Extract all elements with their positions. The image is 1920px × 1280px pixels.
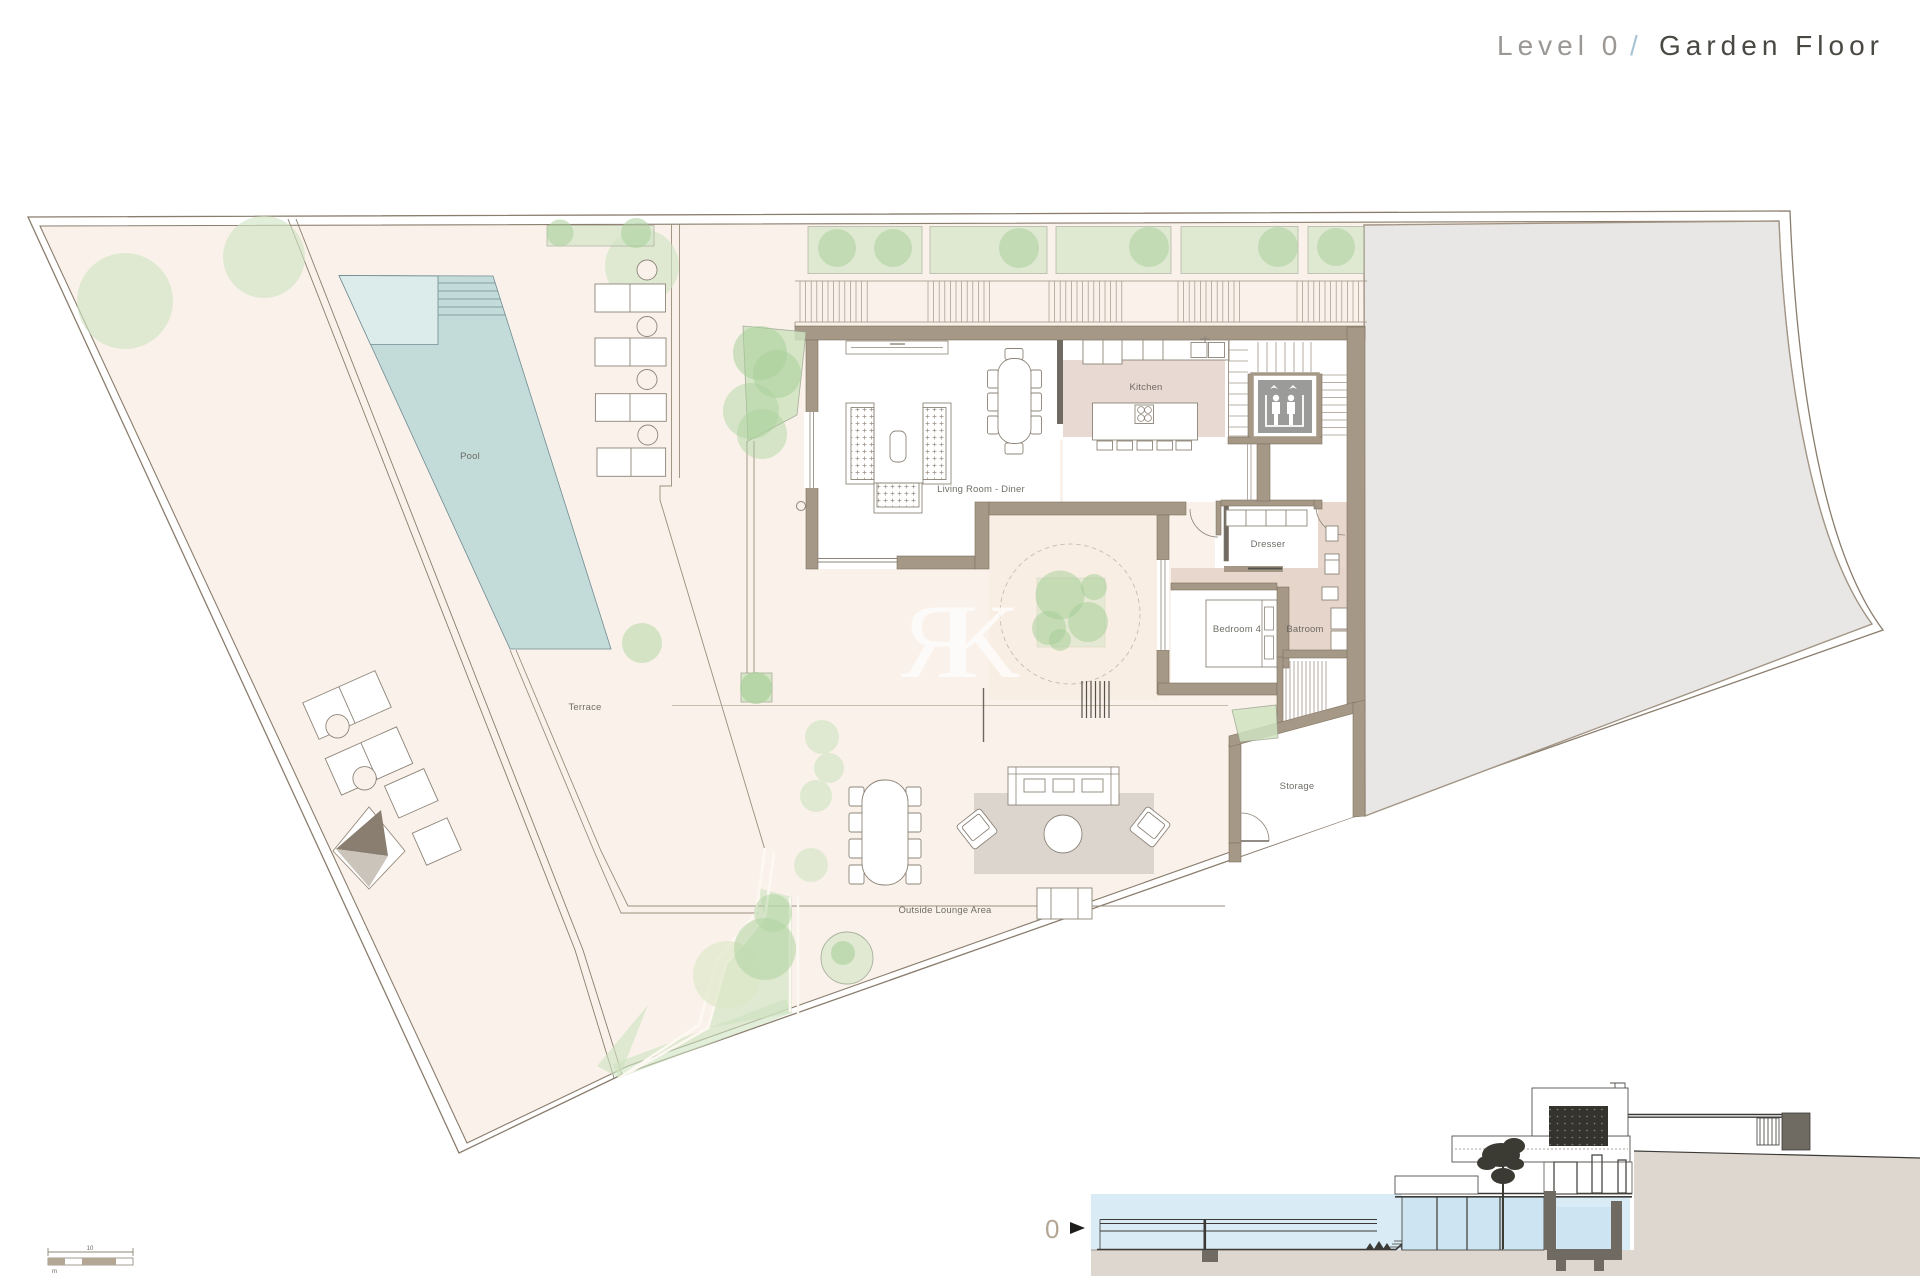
svg-text:10: 10 [87,1246,94,1252]
svg-text:Storage: Storage [1280,781,1315,792]
svg-text:0: 0 [1045,1214,1059,1244]
svg-text:K: K [944,583,1021,700]
svg-text:Bedroom 4: Bedroom 4 [1213,624,1261,635]
svg-text:Dresser: Dresser [1251,539,1286,550]
svg-text:Garden Floor: Garden Floor [1659,30,1884,61]
svg-text:m: m [52,1269,57,1275]
svg-text:Batroom: Batroom [1286,624,1323,635]
svg-text:Kitchen: Kitchen [1129,382,1162,393]
svg-text:Terrace: Terrace [568,702,601,713]
svg-text:/: / [1630,30,1643,61]
svg-text:Level 0: Level 0 [1497,30,1622,61]
svg-text:Living Room - Diner: Living Room - Diner [937,484,1025,495]
svg-text:Outside Lounge Area: Outside Lounge Area [898,905,992,916]
svg-text:Pool: Pool [460,451,480,462]
